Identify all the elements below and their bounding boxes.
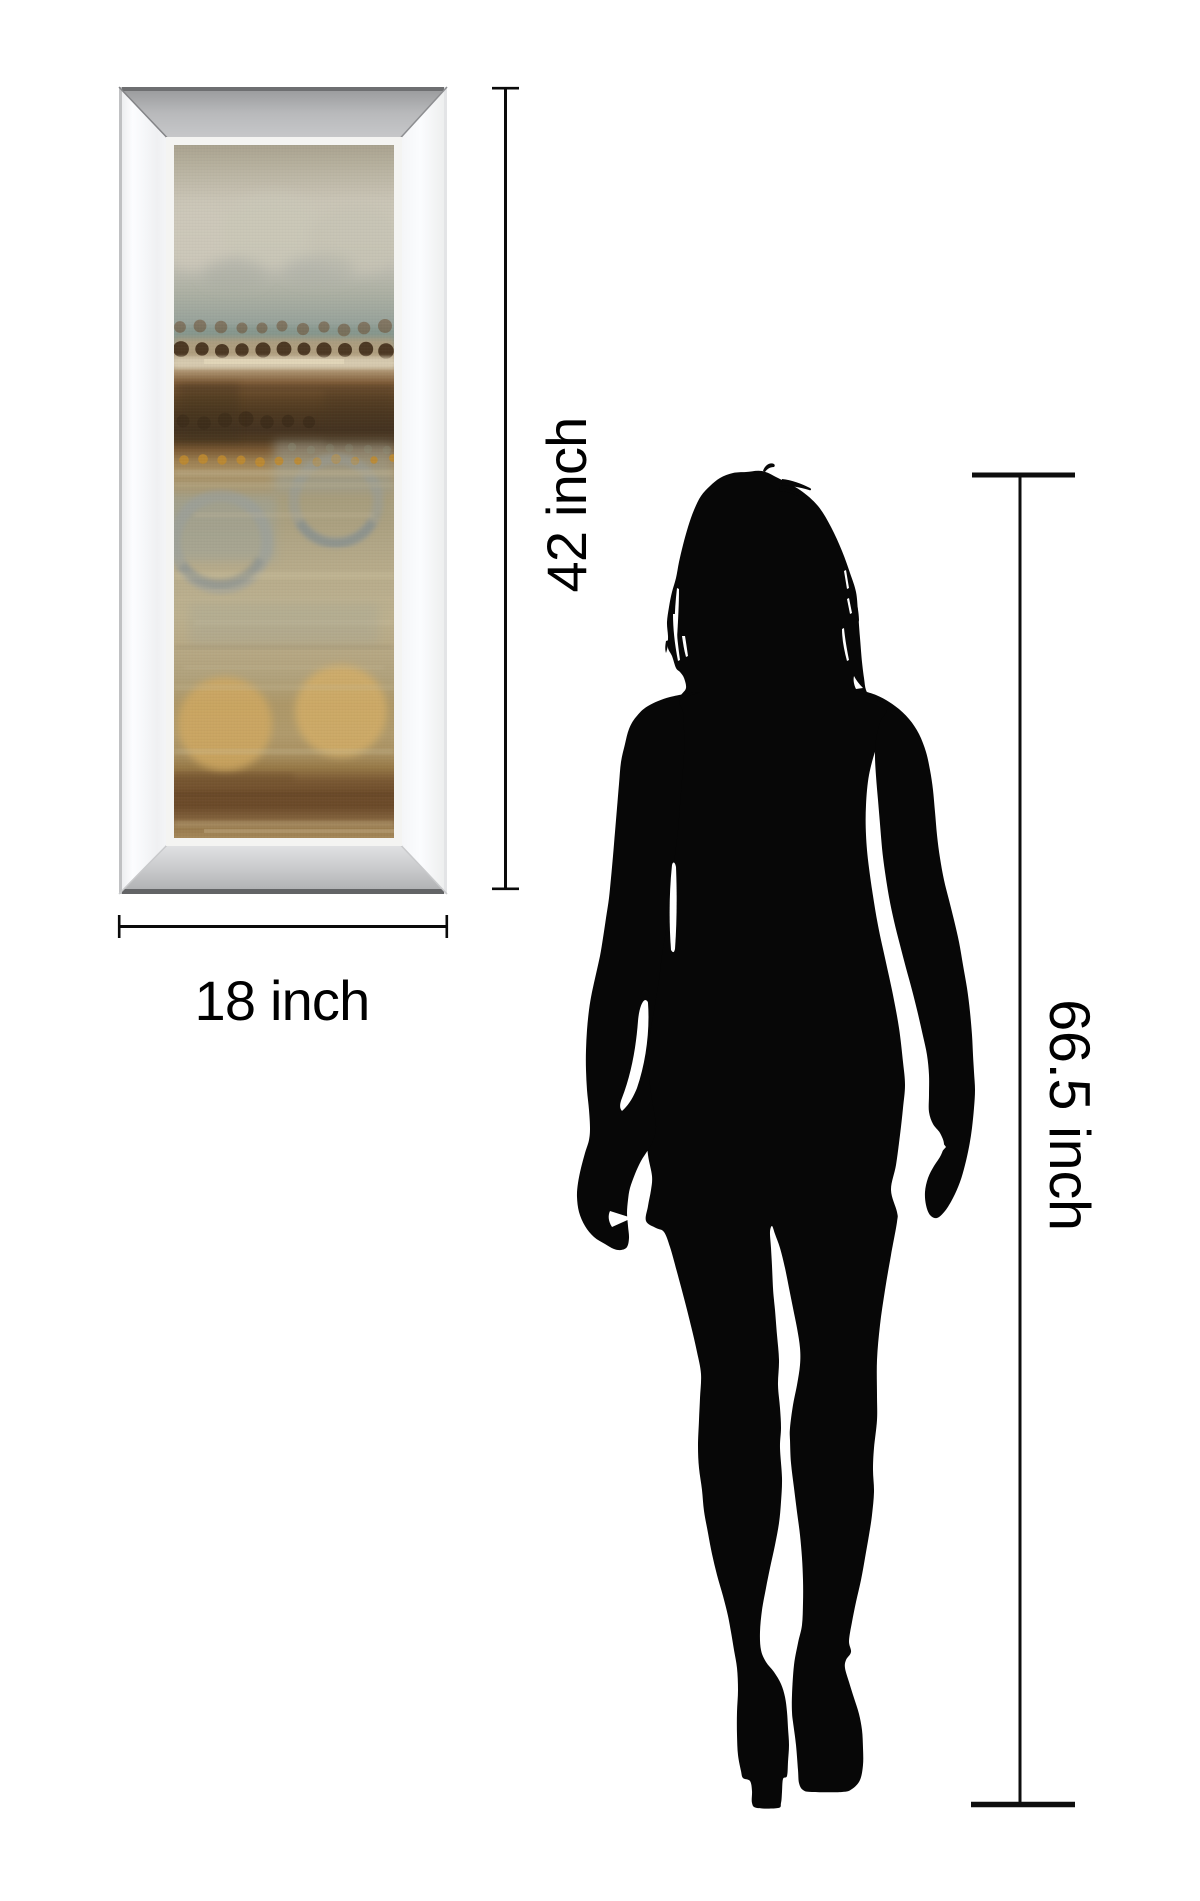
svg-text:18 inch: 18 inch [195, 969, 370, 1032]
svg-text:66.5 inch: 66.5 inch [1037, 999, 1101, 1231]
svg-text:42 inch: 42 inch [535, 418, 598, 593]
